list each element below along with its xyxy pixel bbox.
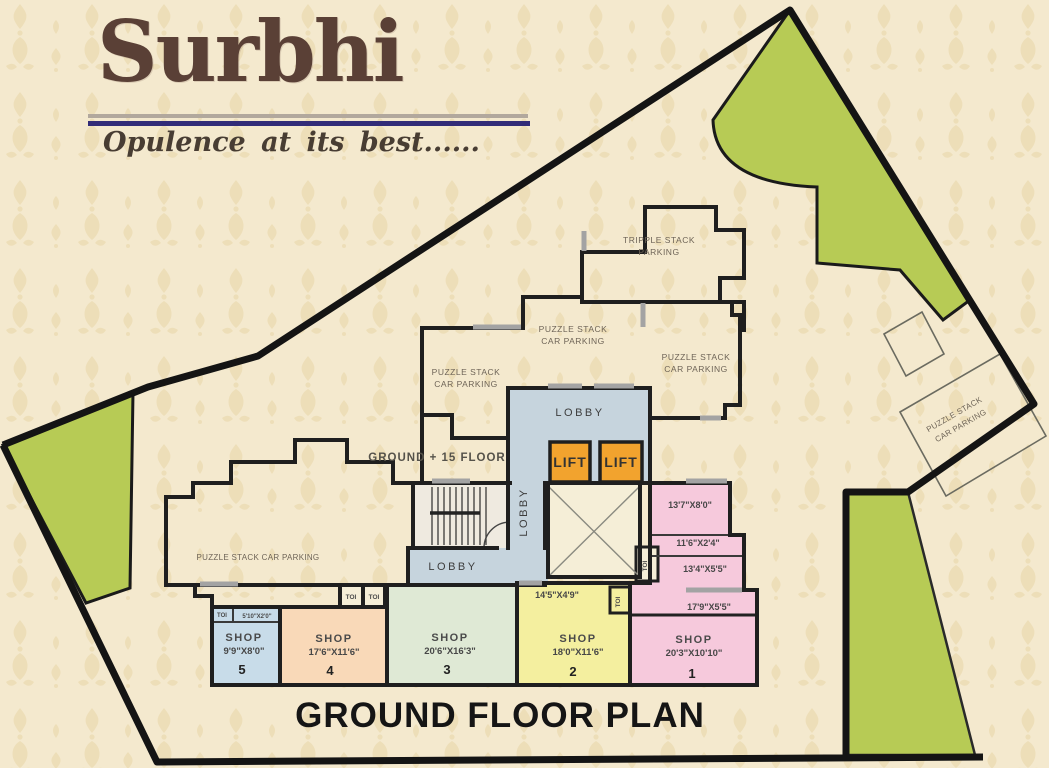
lobby-label-top: LOBBY bbox=[555, 407, 604, 419]
lobby-label-corridor: LOBBY bbox=[518, 487, 530, 536]
tripple-parking-label-line2: PARKING bbox=[638, 247, 679, 257]
shop2-entry-dimension: 14'5"X4'9" bbox=[535, 590, 579, 600]
shop5-number: 5 bbox=[238, 662, 245, 677]
toi-label-shop5: TOI bbox=[217, 613, 227, 619]
puzzle-parking-right-line1: PUZZLE STACK bbox=[662, 352, 731, 362]
toi-label-b: TOI bbox=[369, 594, 380, 601]
brochure-page: PUZZLE STACK CAR PARKING bbox=[0, 0, 1049, 768]
lift-2-label: LIFT bbox=[604, 454, 638, 470]
room-d-dimension: 17'9"X5'5" bbox=[687, 602, 731, 612]
room-a-dimension: 13'7"X8'0" bbox=[668, 500, 712, 510]
shop4-name: SHOP bbox=[315, 633, 352, 645]
floor-note-label: GROUND + 15 FLOOR bbox=[368, 452, 505, 464]
shop2-size: 18'0"X11'6" bbox=[552, 647, 603, 658]
puzzle-parking-left-center-line2: CAR PARKING bbox=[434, 379, 497, 389]
brand-logo: Surbhi bbox=[97, 8, 403, 96]
brand-rule-navy bbox=[88, 121, 530, 126]
puzzle-parking-left-center-line1: PUZZLE STACK bbox=[432, 367, 501, 377]
toi-label-pink: TOI bbox=[642, 560, 649, 571]
shop5-size: 9'9"X8'0" bbox=[224, 646, 265, 657]
puzzle-parking-center-line1: PUZZLE STACK bbox=[539, 324, 608, 334]
puzzle-parking-left-label: PUZZLE STACK CAR PARKING bbox=[197, 553, 320, 562]
shop4-number: 4 bbox=[326, 663, 334, 678]
shop1-number: 1 bbox=[688, 666, 695, 681]
shop4-size: 17'6"X11'6" bbox=[308, 647, 359, 658]
toi-label-a: TOI bbox=[346, 594, 357, 601]
shop2-number: 2 bbox=[569, 664, 576, 679]
room-b-dimension: 11'6"X2'4" bbox=[676, 538, 719, 548]
brand-rule-gray bbox=[88, 114, 528, 118]
lobby-label-lower: LOBBY bbox=[428, 561, 477, 573]
shop5-name: SHOP bbox=[225, 632, 262, 644]
puzzle-parking-right-line2: CAR PARKING bbox=[664, 364, 727, 374]
lift-1-label: LIFT bbox=[553, 454, 587, 470]
room-c-dimension: 13'4"X5'5" bbox=[683, 564, 727, 574]
toi-label-shop2: TOI bbox=[615, 596, 622, 607]
shop1-size: 20'3"X10'10" bbox=[666, 648, 723, 659]
tripple-parking-label-line1: TRIPPLE STACK bbox=[623, 235, 695, 245]
shop2-name: SHOP bbox=[559, 633, 596, 645]
shop1-name: SHOP bbox=[675, 634, 712, 646]
shop3-number: 3 bbox=[443, 662, 450, 677]
shop3-name: SHOP bbox=[431, 632, 468, 644]
plan-title: GROUND FLOOR PLAN bbox=[250, 696, 750, 736]
brand-tagline: Opulence at its best...... bbox=[103, 127, 480, 158]
puzzle-parking-center-line2: CAR PARKING bbox=[541, 336, 604, 346]
shop5-entry-dimension: 5'10"X2'0" bbox=[242, 614, 271, 620]
shop3-size: 20'6"X16'3" bbox=[424, 646, 476, 657]
